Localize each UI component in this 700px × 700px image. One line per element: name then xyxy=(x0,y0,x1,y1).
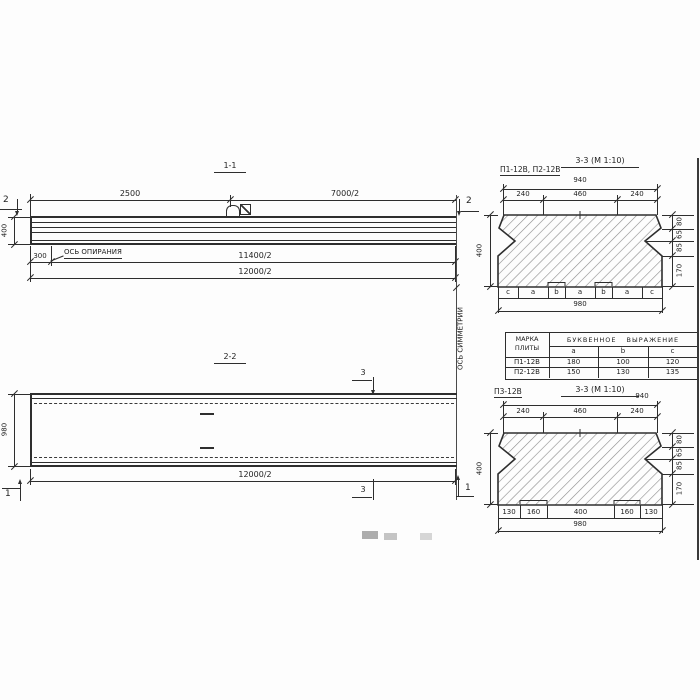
dim-12000-2: 12000/2 xyxy=(210,268,300,276)
dim-400: 400 xyxy=(477,237,484,265)
dim-160: 160 xyxy=(614,509,640,516)
center-mark xyxy=(200,413,214,415)
plan-end-edge xyxy=(30,393,32,467)
cut-marker-2-right: 2 xyxy=(466,197,472,206)
dim-240: 240 xyxy=(503,191,543,198)
dim-line xyxy=(498,531,662,532)
table-row-mark: П1-12В xyxy=(505,359,549,366)
dim-2500: 2500 xyxy=(85,190,175,198)
dim-line xyxy=(498,518,662,519)
plan-top-edge xyxy=(30,393,457,395)
scan-artifact xyxy=(420,533,432,540)
arrow-up-icon xyxy=(456,475,460,480)
plan-bottom-edge xyxy=(30,465,457,467)
table-header-mark: ПЛИТЫ xyxy=(505,345,549,352)
dim-300: 300 xyxy=(28,253,52,260)
dim-tick xyxy=(659,527,666,534)
table-cell: 120 xyxy=(648,359,697,366)
slab-bottom-edge xyxy=(30,243,456,245)
table-cell: 135 xyxy=(648,369,697,376)
cut-marker-3-bottom: 3 xyxy=(356,486,370,494)
dim-line xyxy=(30,278,456,279)
strand-line xyxy=(30,232,456,233)
dim-line xyxy=(14,394,15,467)
dim-940: 940 xyxy=(620,393,664,400)
ext-line xyxy=(657,184,658,215)
strand-line xyxy=(30,222,456,223)
marker-line xyxy=(352,497,372,498)
dim-line xyxy=(498,311,662,312)
letter-b: b xyxy=(548,289,565,296)
section-1-1-title: 1-1 xyxy=(214,162,246,173)
dim-240: 240 xyxy=(503,408,543,415)
table-col-c: c xyxy=(648,348,697,355)
dim-130: 130 xyxy=(498,509,520,516)
cut-marker-1-right: 1 xyxy=(465,484,471,493)
leader-line xyxy=(50,255,63,261)
strand-line xyxy=(30,240,456,241)
strand-line xyxy=(30,227,456,228)
dim-7000-2: 7000/2 xyxy=(300,190,390,198)
dim-line xyxy=(490,215,491,287)
dim-line xyxy=(30,200,456,201)
dim-940: 940 xyxy=(558,177,602,184)
ext-line xyxy=(617,412,618,433)
dim-line xyxy=(14,217,15,245)
section-2-2-title: 2-2 xyxy=(214,353,246,364)
ext-line xyxy=(30,469,31,485)
arrow-up-icon xyxy=(18,479,22,484)
table-row-mark: П2-12В xyxy=(505,369,549,376)
dim-line xyxy=(30,262,456,263)
ext-line xyxy=(617,195,618,215)
dim-240: 240 xyxy=(617,408,657,415)
marker-arrow-line xyxy=(20,483,21,501)
ext-line xyxy=(484,215,498,216)
table-cell: 100 xyxy=(598,359,648,366)
loop-detail-mark xyxy=(240,204,251,215)
dim-85: 85 xyxy=(677,455,684,477)
dim-line xyxy=(490,433,491,505)
ext-line xyxy=(657,401,658,433)
dim-line xyxy=(503,417,657,418)
sheet-border-line xyxy=(697,158,699,560)
table-col-a: a xyxy=(549,348,598,355)
dim-line xyxy=(503,405,657,406)
dim-130: 130 xyxy=(640,509,662,516)
dim-980: 980 xyxy=(558,301,602,308)
ext-line xyxy=(503,401,504,433)
dim-460: 460 xyxy=(543,191,617,198)
scan-artifact xyxy=(362,531,378,539)
table-header-expression: БУКВЕННОЕ ВЫРАЖЕНИЕ xyxy=(549,337,697,344)
table-cell: 150 xyxy=(549,369,598,376)
dim-11400-2: 11400/2 xyxy=(210,252,300,260)
cut-marker-1-left: 1 xyxy=(5,490,11,499)
table-col-b: b xyxy=(598,348,648,355)
slab-cross-section-hatched xyxy=(498,215,662,287)
ext-line xyxy=(484,433,498,434)
cut-marker-2-left: 2 xyxy=(3,196,9,205)
marker-line xyxy=(456,496,474,497)
slab-end-edge xyxy=(30,216,32,245)
center-mark xyxy=(200,447,214,449)
dim-240: 240 xyxy=(617,191,657,198)
plan-inner-line xyxy=(30,462,457,463)
plate-marks-label: П1-12В, П2-12В xyxy=(500,166,560,176)
table-cell: 180 xyxy=(549,359,598,366)
dim-460: 460 xyxy=(543,408,617,415)
dim-170: 170 xyxy=(677,258,684,284)
ext-line xyxy=(503,184,504,215)
marker-arrow-line xyxy=(373,479,374,500)
dim-400: 400 xyxy=(547,509,614,516)
dim-980: 980 xyxy=(2,416,9,444)
drawing-sheet: 1-1 2500 7000/2 2 2 400 300 ОСЬ ОПИРАНИЯ… xyxy=(0,0,700,700)
marker-line xyxy=(352,380,372,381)
table-header-mark: МАРКА xyxy=(505,336,549,343)
dim-tick xyxy=(659,307,666,314)
letter-b: b xyxy=(595,289,612,296)
lifting-loop xyxy=(226,205,240,218)
ext-line xyxy=(662,504,694,505)
dim-400: 400 xyxy=(477,455,484,483)
marker-arrow-line xyxy=(458,479,459,496)
arrow-down-icon xyxy=(457,211,461,216)
dim-line xyxy=(498,298,662,299)
letter-c: c xyxy=(498,289,518,296)
letter-a: a xyxy=(565,289,595,296)
table-cell: 130 xyxy=(598,369,648,376)
marker-line xyxy=(461,211,479,212)
letter-a: a xyxy=(612,289,642,296)
dim-400: 400 xyxy=(2,217,9,245)
section-3-3-title: 3-3 (М 1:10) xyxy=(561,157,639,168)
slab-top-edge xyxy=(30,216,456,218)
ext-line xyxy=(662,286,694,287)
plan-inner-line xyxy=(30,398,457,399)
dim-85: 85 xyxy=(677,237,684,259)
marker-line xyxy=(0,209,22,210)
ext-line xyxy=(8,466,30,467)
cut-marker-3-top: 3 xyxy=(355,369,371,377)
ext-line xyxy=(543,412,544,433)
dim-line xyxy=(30,481,456,482)
ext-line xyxy=(8,244,30,245)
ext-line xyxy=(543,195,544,215)
support-axis-label: ОСЬ ОПИРАНИЯ xyxy=(64,249,122,259)
dim-160: 160 xyxy=(520,509,547,516)
dim-12000-2: 12000/2 xyxy=(210,471,300,479)
scan-artifact xyxy=(384,533,397,540)
hidden-line xyxy=(34,457,454,458)
letter-a: a xyxy=(518,289,548,296)
hidden-line xyxy=(34,403,454,404)
slab-cross-section-hatched xyxy=(498,433,662,505)
dim-170: 170 xyxy=(677,476,684,502)
symmetry-axis-label: ОСЬ СИММЕТРИИ xyxy=(458,293,465,385)
dim-line xyxy=(503,200,657,201)
plate-mark-p3-label: П3-12В xyxy=(494,388,522,398)
letter-c: c xyxy=(642,289,662,296)
dim-980: 980 xyxy=(558,521,602,528)
